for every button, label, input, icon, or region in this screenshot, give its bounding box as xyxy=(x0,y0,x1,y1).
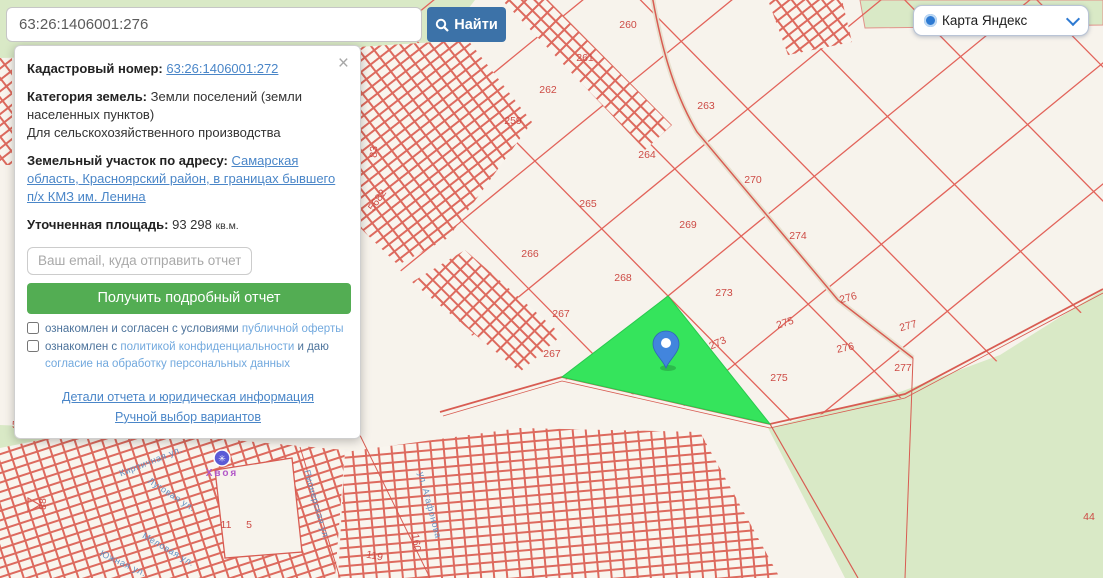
parcel-number-label: 264 xyxy=(638,149,656,161)
cadastral-number-link[interactable]: 63:26:1406001:272 xyxy=(166,61,278,76)
cadastral-number-label: Кадастровый номер: xyxy=(27,61,163,76)
parcel-number-label: 268 xyxy=(614,272,632,284)
parcel-number-label: 273 xyxy=(715,287,733,299)
area-units: кв.м. xyxy=(216,220,239,232)
parcel-number-label: 83 xyxy=(368,146,381,158)
parcel-number-label: 270 xyxy=(744,174,762,186)
parcel-number-label: 160 xyxy=(409,533,423,552)
privacy-consent-text1: ознакомлен с xyxy=(45,341,120,353)
parcel-number-label: 259 xyxy=(504,115,522,127)
cadastral-search-input[interactable] xyxy=(6,7,422,42)
cadastral-number-row: Кадастровый номер: 63:26:1406001:272 xyxy=(27,60,349,78)
manual-select-link[interactable]: Ручной выбор вариантов xyxy=(115,409,261,426)
popup-footer-links: Детали отчета и юридическая информация Р… xyxy=(27,386,349,427)
parcel-number-label: 267 xyxy=(543,348,561,360)
area-value: 93 298 xyxy=(172,217,212,232)
layer-selector[interactable]: Карта Яндекс xyxy=(913,5,1089,36)
parcel-number-label: 275 xyxy=(770,372,788,384)
parcel-number-label: 44 xyxy=(1083,511,1095,523)
poi-name-label: Хвоя xyxy=(206,468,239,479)
poi-icon-glyph: ✳ xyxy=(218,454,226,464)
offer-consent-row: ознакомлен и согласен с условиями публич… xyxy=(27,321,349,338)
area-label: Уточненная площадь: xyxy=(27,217,168,232)
privacy-policy-link[interactable]: политикой конфиденциальности xyxy=(120,341,294,353)
address-row: Земельный участок по адресу: Самарская о… xyxy=(27,152,349,206)
parcel-number-label: 265 xyxy=(579,198,597,210)
parcel-number-label: 269 xyxy=(679,219,697,231)
layer-selector-label: Карта Яндекс xyxy=(942,13,1027,28)
parcel-number-label: 261 xyxy=(576,52,594,64)
address-label: Земельный участок по адресу: xyxy=(27,153,228,168)
parcel-number-label: 267 xyxy=(552,308,570,320)
category-row: Категория земель: Земли поселений (земли… xyxy=(27,88,349,142)
report-details-link[interactable]: Детали отчета и юридическая информация xyxy=(62,389,314,406)
parcel-number-label: 11 xyxy=(221,519,232,531)
layer-radio[interactable] xyxy=(924,14,937,27)
close-icon[interactable]: × xyxy=(338,54,349,73)
email-input[interactable] xyxy=(27,247,252,275)
search-icon xyxy=(435,18,449,32)
privacy-consent-text2: и даю xyxy=(294,341,329,353)
get-report-button[interactable]: Получить подробный отчет xyxy=(27,283,351,314)
chevron-down-icon[interactable] xyxy=(1066,11,1080,25)
parcel-number-label: 262 xyxy=(539,84,557,96)
parcel-number-label: 274 xyxy=(789,230,807,242)
search-button-label: Найти xyxy=(454,17,497,33)
privacy-consent-row: ознакомлен с политикой конфиденциальност… xyxy=(27,339,349,372)
privacy-consent-checkbox[interactable] xyxy=(27,340,39,352)
parcel-info-popup: × Кадастровый номер: 63:26:1406001:272 К… xyxy=(14,45,361,439)
search-bar: Найти xyxy=(6,7,506,42)
parcel-number-label: 266 xyxy=(521,248,539,260)
offer-consent-checkbox[interactable] xyxy=(27,322,39,334)
parcel-number-label: 88 xyxy=(37,498,49,510)
area-row: Уточненная площадь: 93 298 кв.м. xyxy=(27,216,349,234)
category-label: Категория земель: xyxy=(27,89,147,104)
parcel-number-label: 260 xyxy=(619,19,637,31)
parcel-number-label: 5 xyxy=(246,519,252,531)
usage-value: Для сельскохозяйственного производства xyxy=(27,124,349,142)
offer-consent-text: ознакомлен и согласен с условиями xyxy=(45,323,242,335)
parcel-number-label: 263 xyxy=(697,100,715,112)
search-button[interactable]: Найти xyxy=(427,7,506,42)
personal-data-link[interactable]: согласие на обработку персональных данны… xyxy=(45,358,290,370)
public-offer-link[interactable]: публичной оферты xyxy=(242,323,344,335)
parcel-number-label: 277 xyxy=(894,362,912,374)
